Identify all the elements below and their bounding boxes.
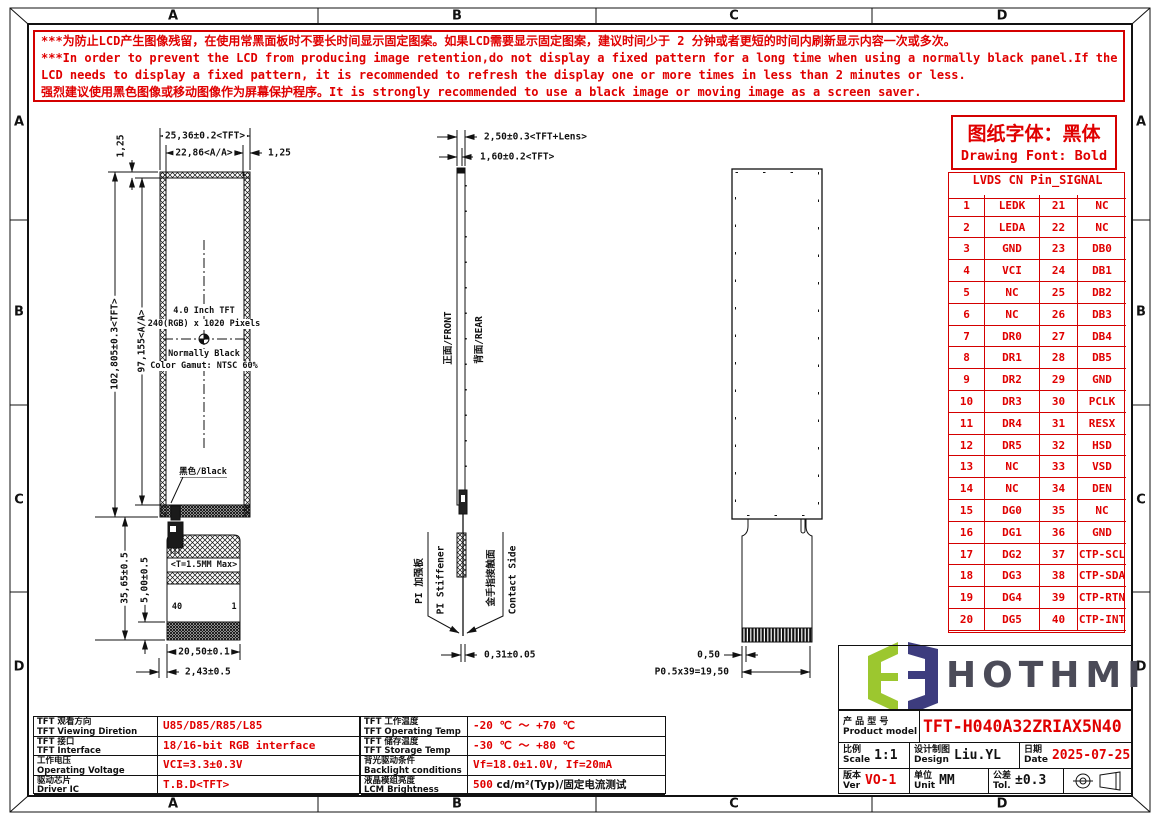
date-label-en: Date	[1024, 755, 1048, 765]
fpc-thickness-note: <T=1.5MM Max>	[170, 560, 239, 570]
pin-number: 27	[1039, 326, 1077, 348]
pin-signal: GND	[1077, 369, 1126, 391]
pin-number: 26	[1039, 304, 1077, 326]
pin-number: 4	[949, 260, 984, 282]
pin-number: 35	[1039, 500, 1077, 522]
spec-table-left: TFT 观看方向TFT Viewing Diretion U85/D85/R85…	[33, 716, 360, 794]
pin-signal: VSD	[1077, 456, 1126, 478]
pin-signal: NC	[984, 282, 1039, 304]
font-note-cn: 图纸字体：黑体	[953, 119, 1115, 146]
pin-signal: NC	[984, 304, 1039, 326]
dim-active-height: 97,155<A/A>	[137, 308, 148, 375]
unit-value: MM	[937, 773, 955, 788]
pin-number: 24	[1039, 260, 1077, 282]
spec-value: 500	[473, 778, 493, 791]
date-label-cn: 日期	[1024, 745, 1048, 755]
pin-signal: HSD	[1077, 435, 1126, 457]
zone-label-top-b: B	[452, 9, 462, 24]
zone-label-bottom-c: C	[729, 797, 739, 812]
pin-number: 39	[1039, 587, 1077, 609]
pin-signal: DB2	[1077, 282, 1126, 304]
spec-label-en: TFT Operating Temp	[364, 728, 467, 737]
pin-signal: LEDK	[984, 195, 1039, 217]
pin-number: 9	[949, 369, 984, 391]
version-label-cn: 版本	[843, 771, 861, 781]
hothmi-logo-text: HOTHMI	[946, 655, 1147, 696]
dim-thickness-tft: 1,60±0.2<TFT>	[478, 152, 556, 163]
side-rear-label: 背面/REAR	[471, 314, 485, 366]
pin-number: 11	[949, 413, 984, 435]
spec-label-en: LCM Brightness	[364, 786, 467, 795]
pin-signal: GND	[1077, 522, 1126, 544]
panel-mode-label: Normally Black	[167, 349, 241, 359]
dim-fpc-offset: 2,43±0.5	[183, 667, 233, 678]
pin-signal: DEN	[1077, 478, 1126, 500]
pin-signal: RESX	[1077, 413, 1126, 435]
pin-number: 34	[1039, 478, 1077, 500]
pin-number: 38	[1039, 565, 1077, 587]
product-model-value: TFT-H040A32ZRIAX5N40	[919, 711, 1131, 742]
pin-number: 16	[949, 522, 984, 544]
zone-label-right-a: A	[1136, 115, 1146, 130]
pin-signal: PCLK	[1077, 391, 1126, 413]
warning-line-2: ***In order to prevent the LCD from prod…	[41, 50, 1117, 67]
pin-signal: DR3	[984, 391, 1039, 413]
spec-value: Vf=18.0±1.0V, If=20mA	[473, 758, 612, 771]
pin-number: 5	[949, 282, 984, 304]
pin-number: 32	[1039, 435, 1077, 457]
pin-signal: DB3	[1077, 304, 1126, 326]
contact-side-label-cn: 金手指接触面	[483, 547, 497, 608]
pin-signal: DR5	[984, 435, 1039, 457]
pin-signal: DR4	[984, 413, 1039, 435]
pin-signal: LEDA	[984, 217, 1039, 239]
panel-size-label: 4.0 Inch TFT	[172, 306, 235, 316]
pin-number: 18	[949, 565, 984, 587]
fpc-pin1-label: 1	[230, 602, 237, 612]
design-label-cn: 设计制图	[914, 745, 950, 755]
pi-stiffener-label-cn: PI 加强板	[411, 556, 425, 606]
dim-fpc-width: 20,50±0.1	[176, 647, 231, 658]
fpc-pin40-label: 40	[171, 602, 183, 612]
dim-pitch-unit: 0,50	[695, 650, 722, 661]
pin-number: 22	[1039, 217, 1077, 239]
pin-signal: DB1	[1077, 260, 1126, 282]
lvds-pin-table: LVDS CN Pin_SIGNAL 1 LEDK 21 NC 2 LEDA 2…	[948, 172, 1125, 633]
pin-number: 12	[949, 435, 984, 457]
pin-signal: CTP-SDA	[1077, 565, 1126, 587]
pin-number: 37	[1039, 544, 1077, 566]
unit-label-cn: 单位	[914, 771, 935, 781]
pin-signal: DB0	[1077, 238, 1126, 260]
date-value: 2025-07-25	[1050, 748, 1130, 763]
spec-label-en: TFT Viewing Diretion	[37, 728, 157, 737]
zone-label-left-c: C	[14, 493, 24, 508]
design-value: Liu.YL	[952, 748, 1001, 763]
zone-label-right-c: C	[1136, 493, 1146, 508]
zone-label-top-a: A	[168, 9, 178, 24]
tolerance-label-cn: 公差	[993, 771, 1011, 781]
tolerance-value: ±0.3	[1013, 773, 1046, 788]
dim-right-margin: 1,25	[266, 148, 293, 159]
spec-label-en: Operating Voltage	[37, 767, 157, 776]
side-front-label: 正面/FRONT	[440, 309, 454, 366]
warning-line-3: LCD needs to display a fixed pattern, it…	[41, 67, 1117, 84]
unit-label-en: Unit	[914, 781, 935, 791]
dim-fpc-5mm: 5,00±0.5	[140, 555, 151, 605]
design-label-en: Design	[914, 755, 950, 765]
dim-active-width: 22,86<A/A>	[173, 148, 234, 159]
pin-signal: NC	[1077, 500, 1126, 522]
pin-number: 14	[949, 478, 984, 500]
dim-panel-height: 102,805±0.3<TFT>	[110, 296, 121, 392]
panel-gamut-label: Color Gamut: NTSC 60%	[149, 361, 258, 371]
warning-line-1: ***为防止LCD产生图像残留，在使用常黑面板时不要长时间显示固定图案。如果LC…	[41, 33, 1117, 50]
pin-signal: DR0	[984, 326, 1039, 348]
font-note-en: Drawing Font: Bold	[953, 148, 1115, 164]
pin-signal: DG3	[984, 565, 1039, 587]
warning-line-4: 强烈建议使用黑色图像或移动图像作为屏幕保护程序。It is strongly r…	[41, 84, 1117, 101]
pin-signal: DG4	[984, 587, 1039, 609]
pin-signal: CTP-SCL	[1077, 544, 1126, 566]
pin-number: 31	[1039, 413, 1077, 435]
pin-number: 23	[1039, 238, 1077, 260]
drawing-page: A B C D A B C D A B C D A B C D ***为防止LC…	[0, 0, 1160, 820]
pin-signal: DG1	[984, 522, 1039, 544]
pin-signal: CTP-INT	[1077, 609, 1126, 631]
pin-number: 28	[1039, 347, 1077, 369]
panel-resolution-label: 240(RGB) x 1020 Pixels	[147, 319, 262, 329]
zone-label-left-d: D	[14, 660, 25, 675]
pi-stiffener-label-en: PI Stiffener	[436, 544, 447, 617]
pin-number: 25	[1039, 282, 1077, 304]
dim-top-margin: 1,25	[116, 133, 127, 160]
pin-signal: DG0	[984, 500, 1039, 522]
zone-label-left-a: A	[14, 115, 24, 130]
zone-label-bottom-a: A	[168, 797, 178, 812]
spec-value: U85/D85/R85/L85	[163, 719, 262, 732]
product-model-label-en: Product model	[843, 727, 917, 737]
zone-label-bottom-b: B	[452, 797, 462, 812]
spec-label-en: Driver IC	[37, 786, 157, 795]
pin-number: 21	[1039, 195, 1077, 217]
dim-panel-width: 25,36±0.2<TFT>	[163, 131, 247, 142]
dim-pitch-total: P0.5x39=19,50	[653, 667, 731, 678]
scale-label-en: Scale	[843, 755, 870, 765]
contact-side-label-en: Contact Side	[508, 544, 519, 617]
pin-number: 19	[949, 587, 984, 609]
pin-signal: DG2	[984, 544, 1039, 566]
pin-number: 20	[949, 609, 984, 631]
spec-value: -30 ℃ ～ +80 ℃	[473, 739, 575, 752]
zone-label-bottom-d: D	[997, 797, 1008, 812]
pin-signal: DR2	[984, 369, 1039, 391]
tolerance-label-en: Tol.	[993, 781, 1011, 791]
pin-signal: VCI	[984, 260, 1039, 282]
spec-label-en: TFT Interface	[37, 747, 157, 756]
pin-signal: DR1	[984, 347, 1039, 369]
pin-signal: NC	[984, 478, 1039, 500]
pin-number: 40	[1039, 609, 1077, 631]
pin-signal: CTP-RTN	[1077, 587, 1126, 609]
pin-signal: NC	[1077, 217, 1126, 239]
version-label-en: Ver	[843, 781, 861, 791]
pin-number: 36	[1039, 522, 1077, 544]
third-angle-projection-icon	[1072, 771, 1124, 791]
dim-thickness-lens: 2,50±0.3<TFT+Lens>	[482, 132, 589, 143]
zone-label-top-d: D	[997, 9, 1008, 24]
black-border-label: 黑色/Black	[178, 465, 228, 477]
dim-fpc-thickness: 0,31±0.05	[482, 650, 537, 661]
zone-label-right-b: B	[1136, 305, 1146, 320]
pin-signal: DB5	[1077, 347, 1126, 369]
pin-number: 29	[1039, 369, 1077, 391]
dim-fpc-length: 35,65±0.5	[120, 550, 131, 605]
retention-warning-box: ***为防止LCD产生图像残留，在使用常黑面板时不要长时间显示固定图案。如果LC…	[33, 30, 1125, 102]
spec-table-middle: TFT 工作温度TFT Operating Temp -20 ℃ ～ +70 ℃…	[360, 716, 666, 794]
pin-number: 7	[949, 326, 984, 348]
spec-label-en: Backlight conditions	[364, 767, 467, 776]
spec-label-en: TFT Storage Temp	[364, 747, 467, 756]
zone-label-left-b: B	[14, 305, 24, 320]
pin-signal: DB4	[1077, 326, 1126, 348]
title-block: 产 品 型 号Product model TFT-H040A32ZRIAX5N4…	[838, 710, 1132, 794]
pin-signal: NC	[1077, 195, 1126, 217]
pin-number: 2	[949, 217, 984, 239]
pin-number: 33	[1039, 456, 1077, 478]
scale-label-cn: 比例	[843, 745, 870, 755]
spec-value: -20 ℃ ～ +70 ℃	[473, 719, 575, 732]
product-model-label-cn: 产 品 型 号	[843, 717, 917, 727]
drawing-font-note: 图纸字体：黑体 Drawing Font: Bold	[951, 115, 1117, 170]
pin-number: 8	[949, 347, 984, 369]
version-value: VO-1	[863, 773, 896, 788]
pin-signal: DG5	[984, 609, 1039, 631]
pin-number: 17	[949, 544, 984, 566]
spec-value: 18/16-bit RGB interface	[163, 739, 315, 752]
pin-number: 3	[949, 238, 984, 260]
pin-number: 1	[949, 195, 984, 217]
pin-number: 15	[949, 500, 984, 522]
zone-label-top-c: C	[729, 9, 739, 24]
spec-value: T.B.D<TFT>	[163, 778, 229, 791]
pin-number: 6	[949, 304, 984, 326]
pin-number: 30	[1039, 391, 1077, 413]
pin-number: 13	[949, 456, 984, 478]
pin-signal: GND	[984, 238, 1039, 260]
scale-value: 1:1	[872, 748, 897, 763]
spec-value-suffix: cd/m²(Typ)/固定电流测试	[493, 779, 626, 791]
pin-number: 10	[949, 391, 984, 413]
pin-signal: NC	[984, 456, 1039, 478]
spec-value: VCI=3.3±0.3V	[163, 758, 242, 771]
